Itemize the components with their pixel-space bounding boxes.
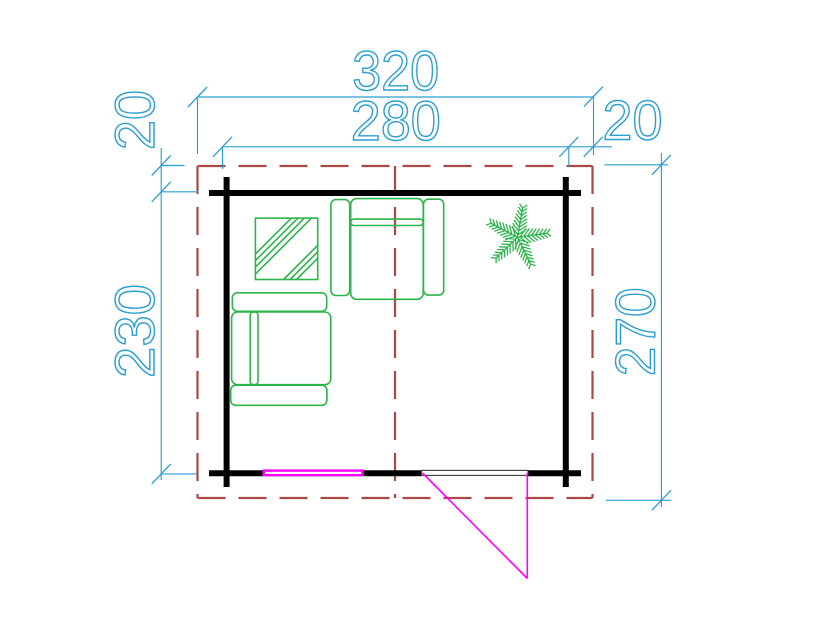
svg-text:20: 20 xyxy=(103,90,166,150)
svg-text:230: 230 xyxy=(103,284,166,378)
svg-text:280: 280 xyxy=(351,89,441,152)
svg-text:270: 270 xyxy=(604,287,667,376)
svg-text:20: 20 xyxy=(603,89,663,152)
